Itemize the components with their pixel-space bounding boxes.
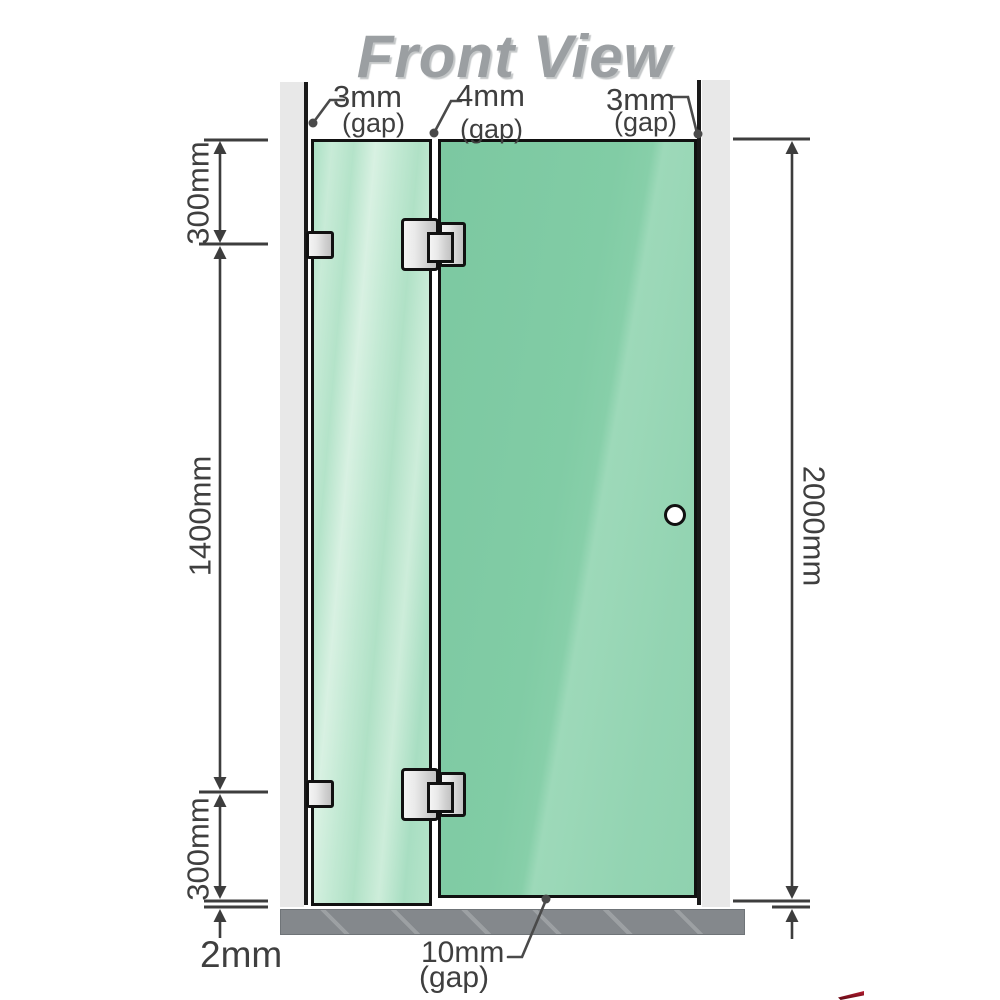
hinge-top-bridge [427,232,454,263]
hinge-bottom-bridge [427,782,454,813]
dimension-left-top: 300mm [183,141,214,244]
gap-top-right-qualifier: (gap) [614,109,677,136]
door-glass-panel [438,139,697,898]
gap-bottom-door-qualifier: (gap) [419,963,489,993]
gap-top-left-qualifier: (gap) [342,110,405,137]
wall-bracket-top [306,231,334,259]
wall-bracket-bottom [306,780,334,808]
wall-channel-left [280,82,304,907]
wall-channel-right [702,80,730,907]
logo-mark-cutoff [838,991,864,1000]
floor-base-bar [280,909,745,935]
gap-top-middle-value: 4mm [456,80,525,111]
gap-top-middle-qualifier: (gap) [460,116,523,143]
door-knob [664,504,686,526]
gap-bottom-panel-value: 2mm [200,936,282,973]
wall-edge-line-right [697,80,701,905]
dimension-left-middle: 1400mm [185,456,216,577]
dimension-left-bottom: 300mm [183,797,214,900]
dimension-right-total: 2000mm [799,466,830,587]
shower-screen-front-view-diagram: Front View [0,0,1000,1000]
